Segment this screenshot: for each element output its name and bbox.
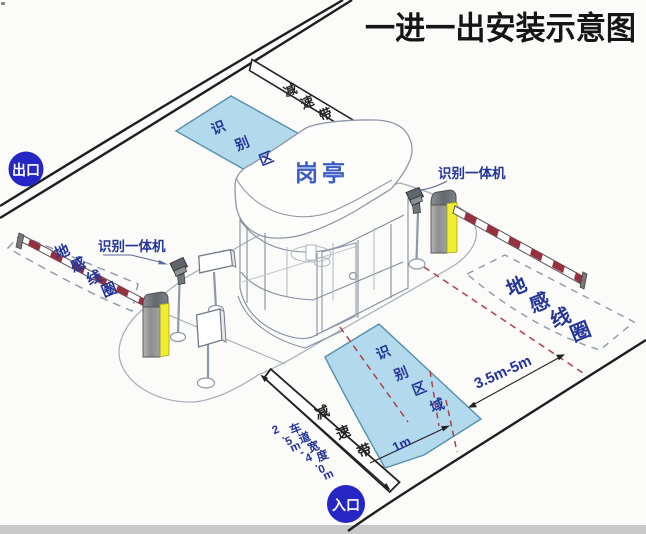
svg-text:一进一出安装示意图: 一进一出安装示意图 (365, 10, 636, 46)
svg-text:识别一体机: 识别一体机 (438, 165, 506, 181)
svg-text:识别一体机: 识别一体机 (98, 238, 166, 254)
svg-text:入口: 入口 (332, 497, 360, 513)
svg-text:出口: 出口 (12, 162, 40, 178)
